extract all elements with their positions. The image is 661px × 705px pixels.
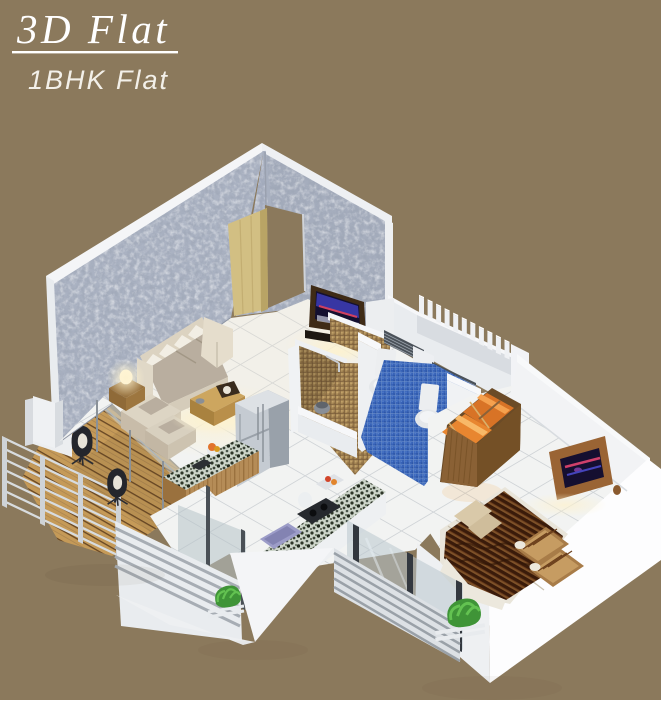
svg-text:3D Flat: 3D Flat	[16, 6, 170, 52]
svg-text:1BHK Flat: 1BHK Flat	[28, 65, 169, 95]
